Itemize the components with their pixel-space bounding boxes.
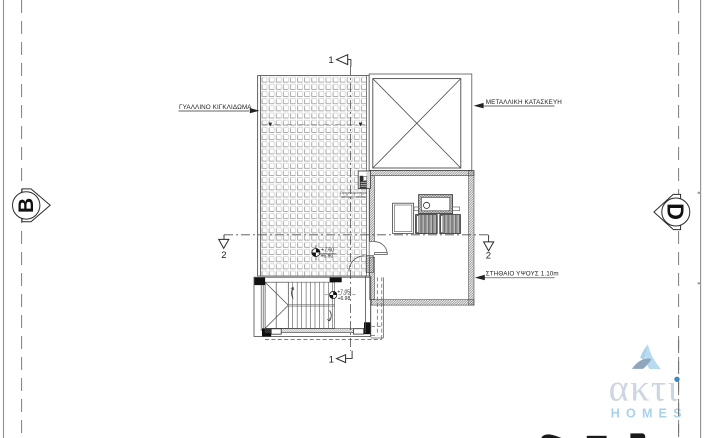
svg-text:D: D — [663, 203, 689, 220]
svg-text:ακτι: ακτι — [609, 368, 680, 410]
svg-text:2: 2 — [486, 250, 491, 261]
svg-text:+6.90: +6.90 — [321, 254, 334, 260]
svg-text:από μηχ. στάσιο: από μηχ. στάσιο — [342, 195, 366, 199]
svg-text:+7.60: +7.60 — [321, 247, 334, 253]
svg-text:ΣΤΗΘΑΙΟ ΥΨΟΥΣ 1.10m: ΣΤΗΘΑΙΟ ΥΨΟΥΣ 1.10m — [486, 270, 559, 277]
svg-text:ΓΥΑΛΛΙΝΟ ΚΙΓΚΛΙΔΩΜΑ: ΓΥΑΛΛΙΝΟ ΚΙΓΚΛΙΔΩΜΑ — [179, 104, 252, 111]
svg-text:+7.05: +7.05 — [337, 289, 350, 295]
svg-text:B: B — [15, 198, 38, 213]
svg-text:1: 1 — [328, 55, 333, 66]
svg-text:HOMES: HOMES — [611, 406, 688, 420]
svg-text:+6.98: +6.98 — [338, 296, 351, 302]
svg-text:1: 1 — [329, 354, 334, 365]
svg-text:ΜΕΤΑΛΛΙΚΗ ΚΑΤΑΣΚΕΥΗ: ΜΕΤΑΛΛΙΚΗ ΚΑΤΑΣΚΕΥΗ — [486, 99, 562, 106]
svg-text:2: 2 — [221, 250, 226, 261]
